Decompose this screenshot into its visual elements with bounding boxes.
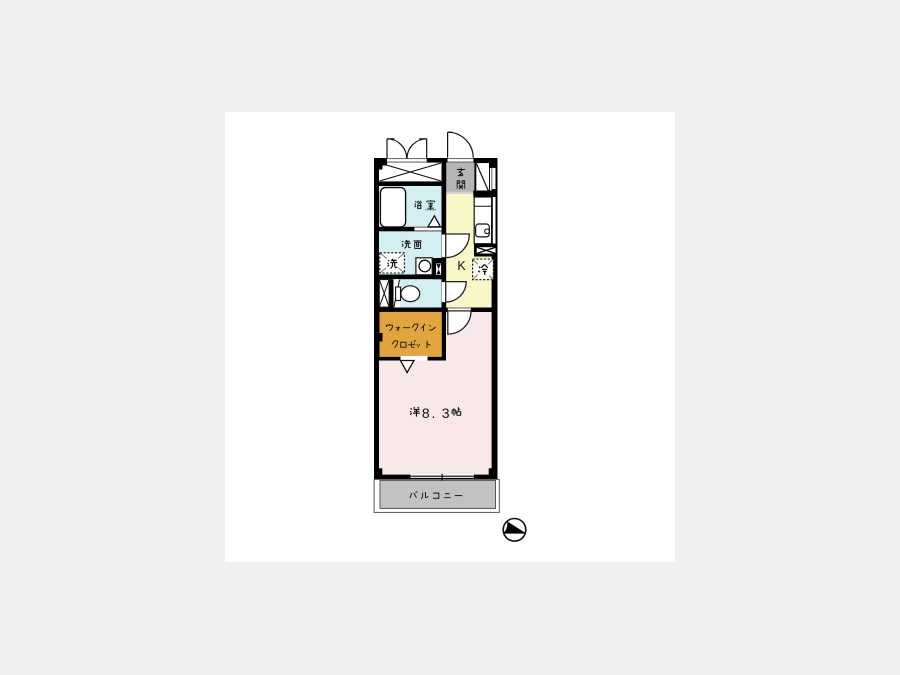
svg-text:3: 3 [442, 405, 450, 421]
svg-text:.: . [432, 405, 436, 421]
svg-text:8: 8 [422, 405, 430, 421]
svg-text:K: K [457, 259, 466, 273]
